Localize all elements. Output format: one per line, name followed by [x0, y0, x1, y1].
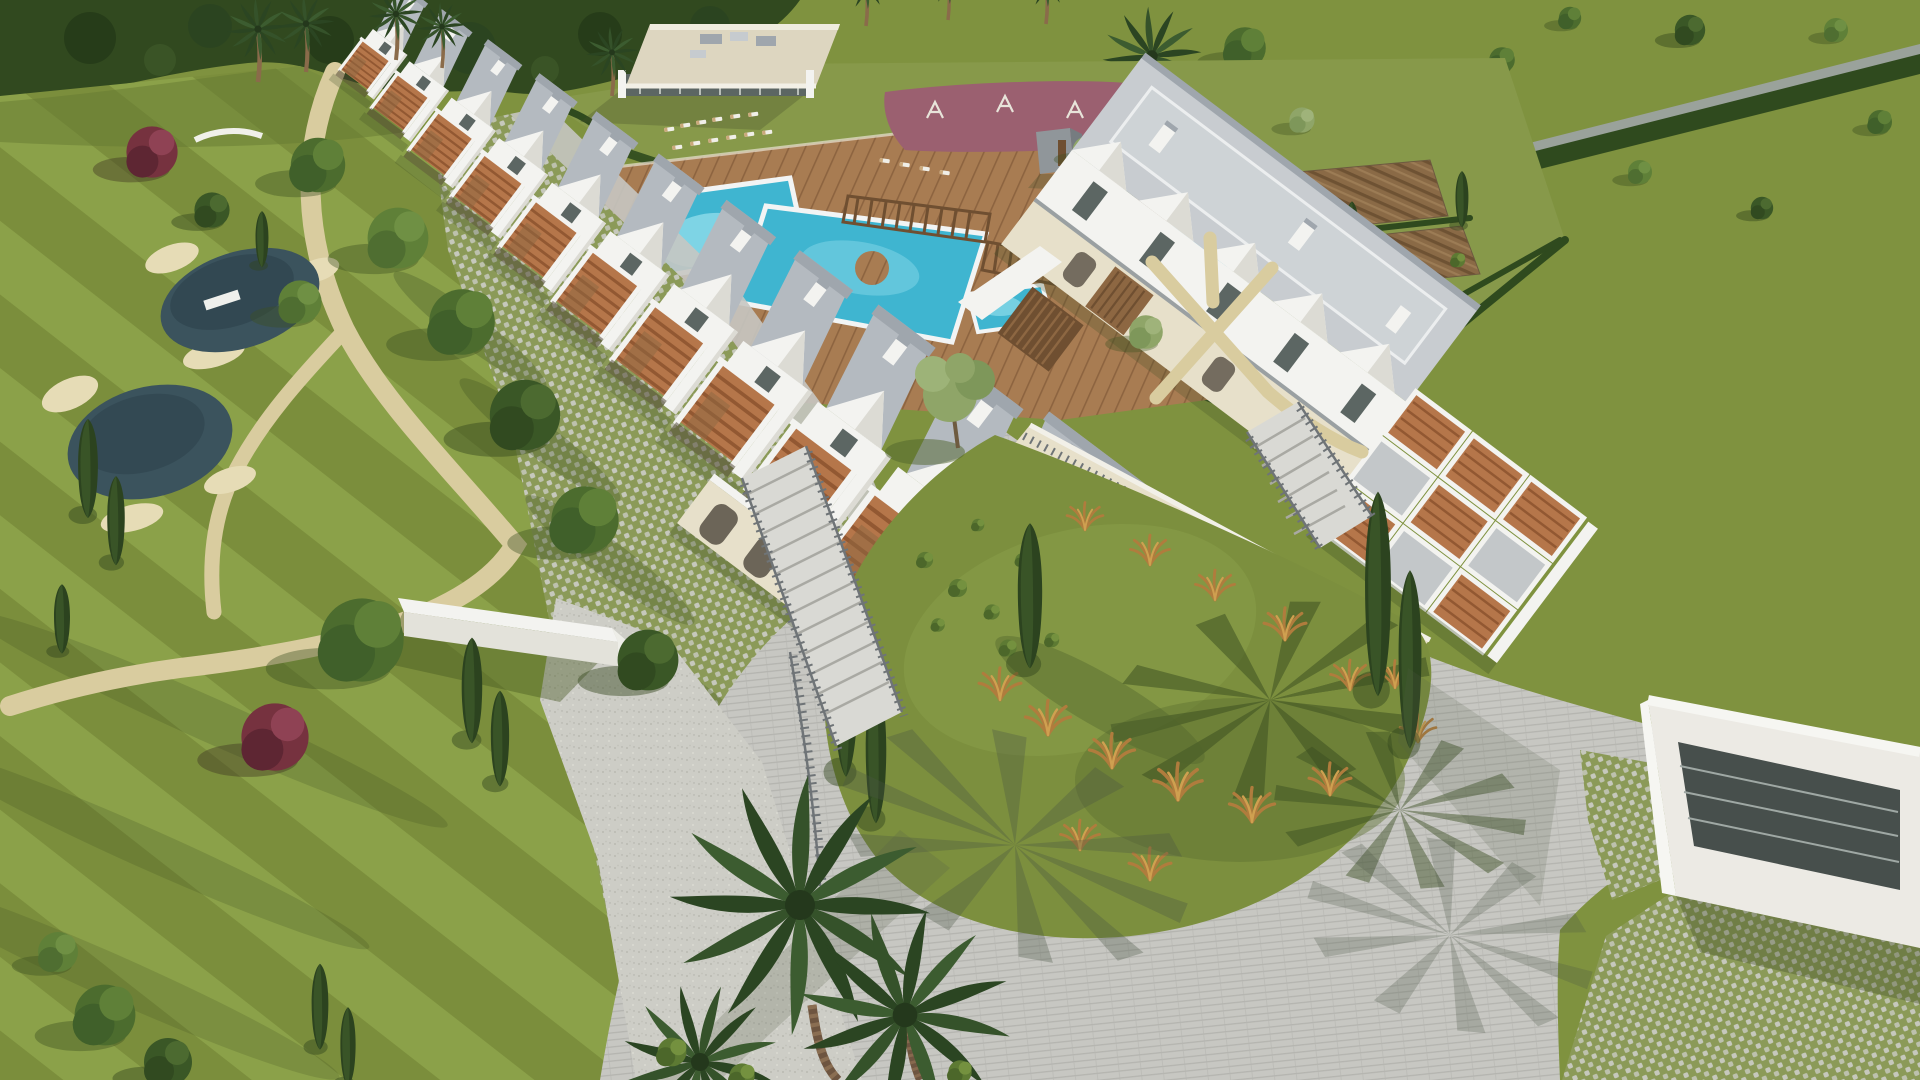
aerial-render [0, 0, 1920, 1080]
pool-island [855, 251, 889, 285]
architectural-render-canvas [0, 0, 1920, 1080]
